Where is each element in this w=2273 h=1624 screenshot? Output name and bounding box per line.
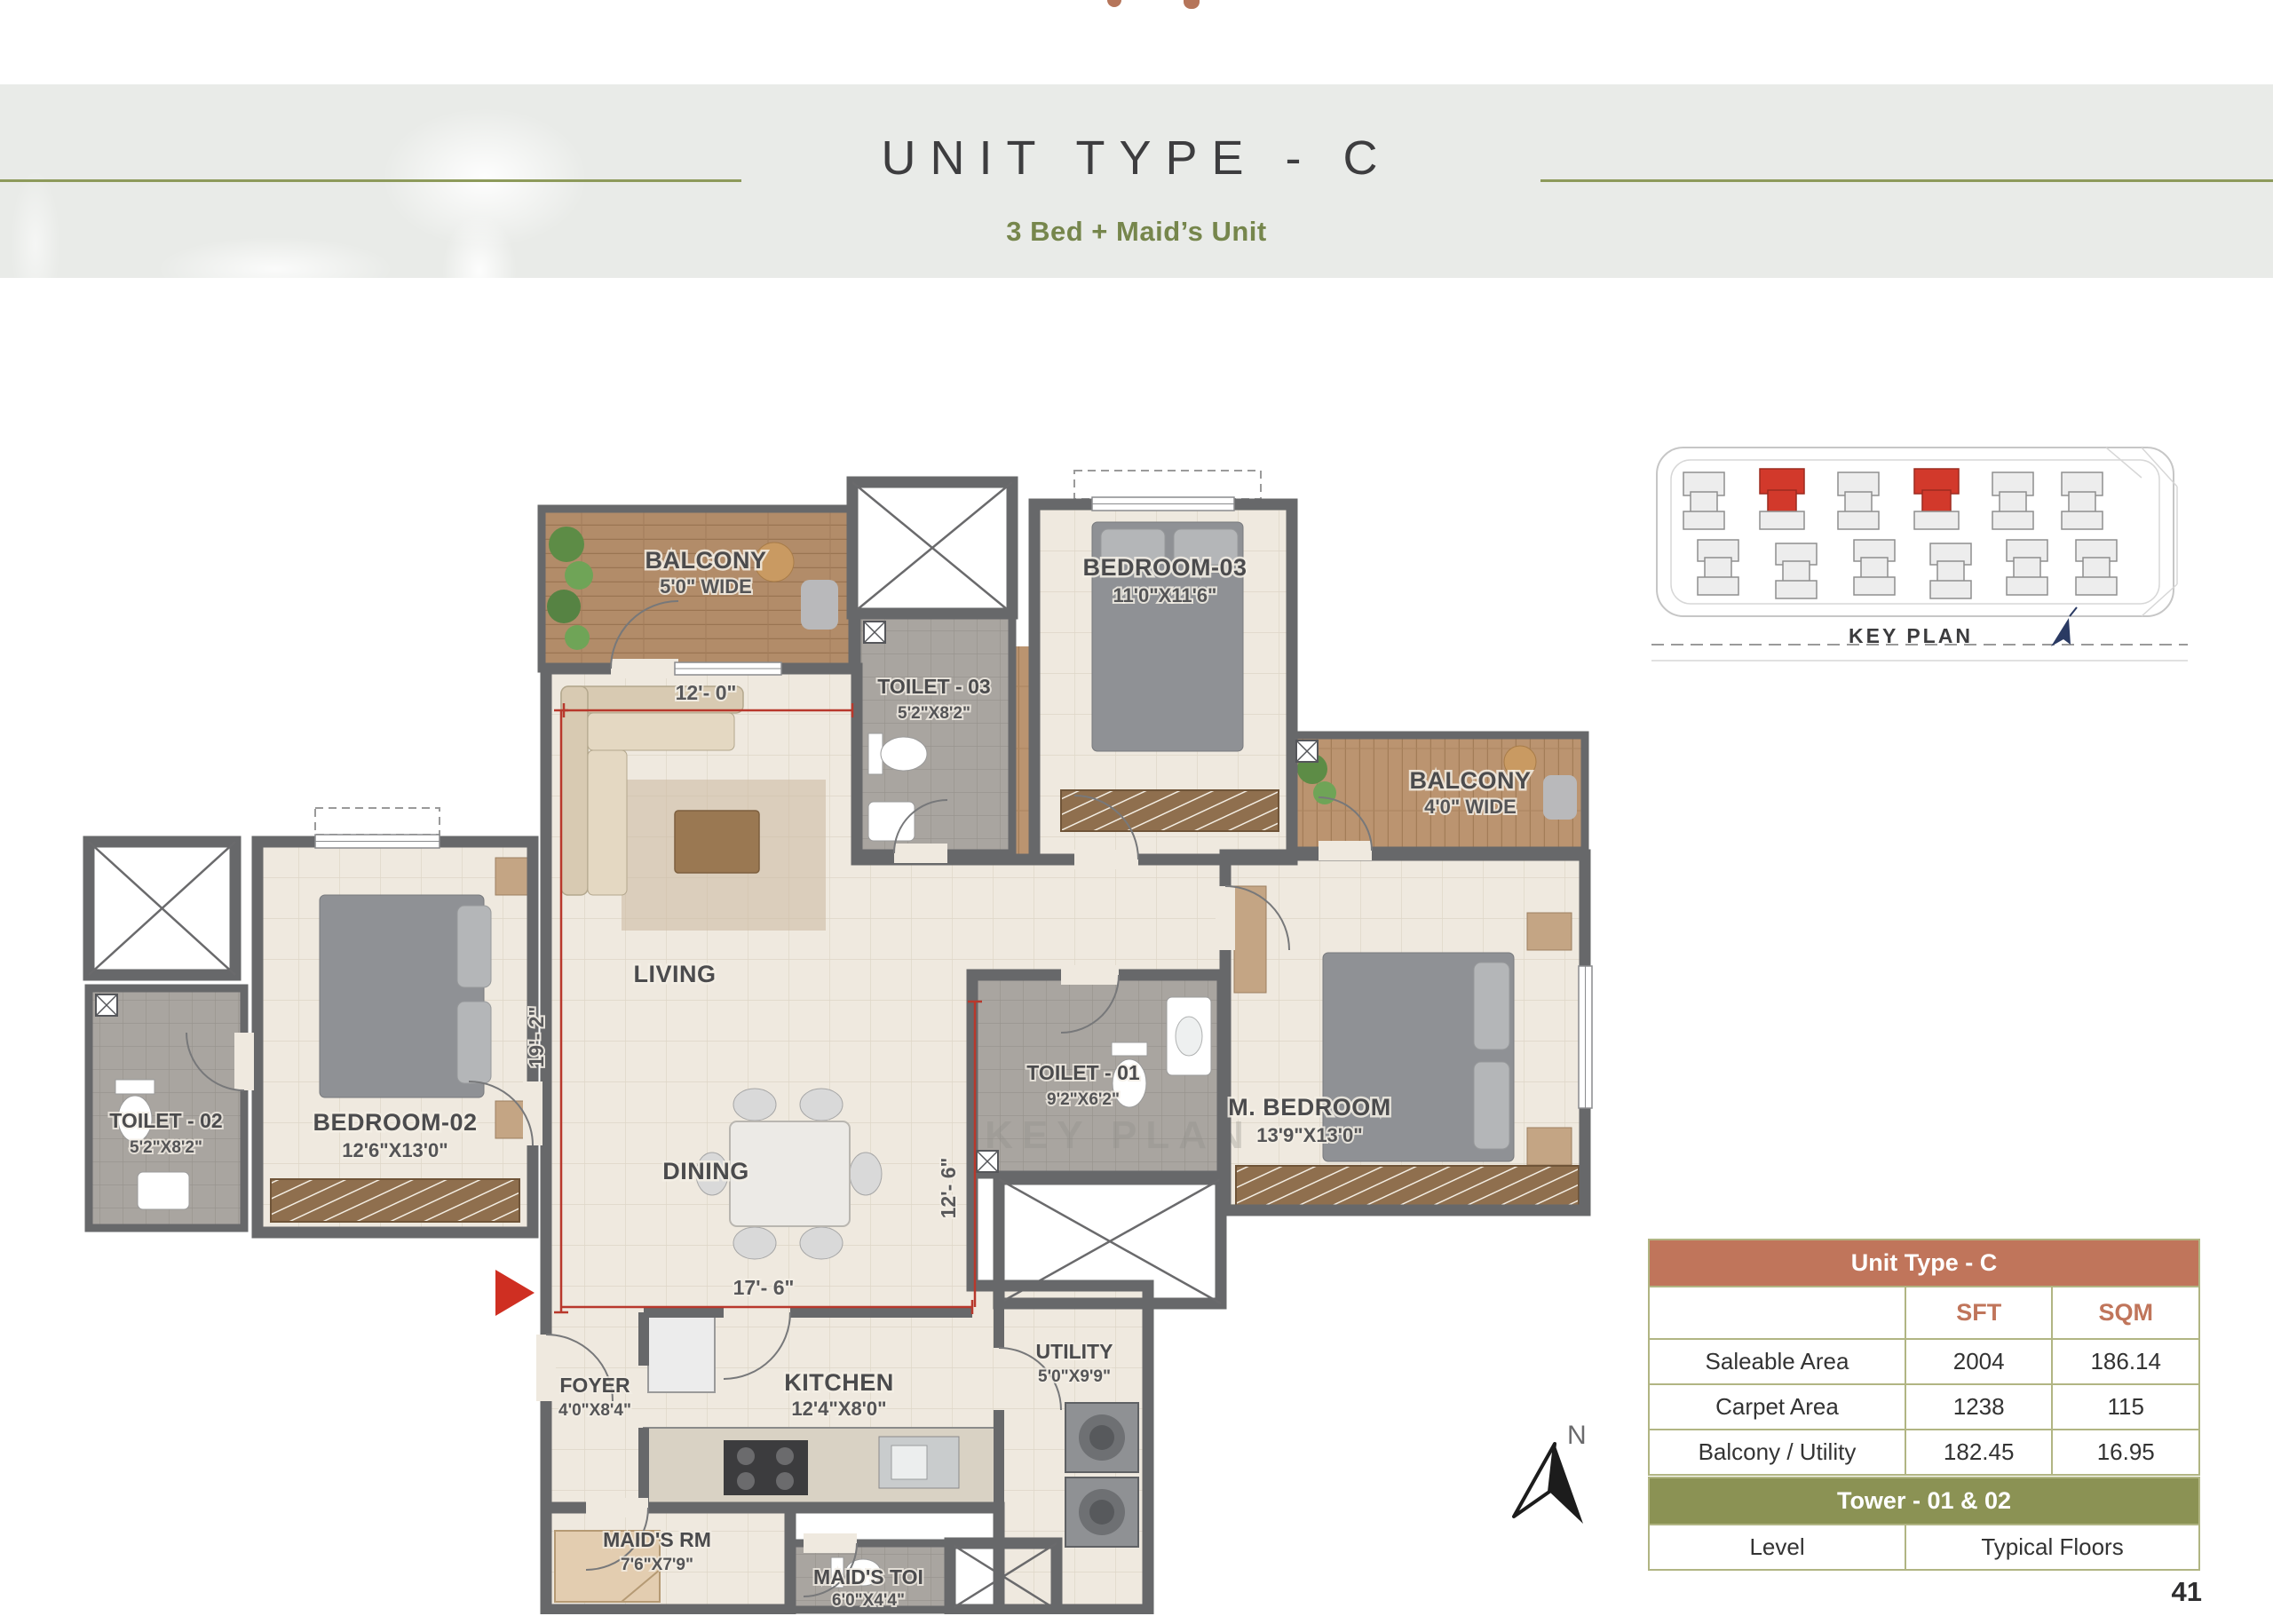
room-label-bedroom-2: BEDROOM-02 [313, 1109, 477, 1136]
tower-col-level: Level [1649, 1525, 1905, 1570]
room-dim-utility: 5'0"X9'9" [1038, 1367, 1111, 1386]
area-table-header-sqm: SQM [2052, 1287, 2199, 1339]
entry-arrow [495, 1270, 535, 1316]
tower-col-floors: Typical Floors [1905, 1525, 2199, 1570]
room-dim-kitchen: 12'4"X8'0" [791, 1398, 886, 1420]
room-dim-master-bedroom: 13'9"X13'0" [1256, 1124, 1362, 1146]
dim-dining-height: 12'- 6" [937, 1158, 960, 1219]
north-label: N [1567, 1421, 1587, 1450]
room-dim-bedroom-3: 11'0"X11'6" [1113, 584, 1217, 606]
area-table-blank-header [1649, 1287, 1905, 1339]
room-dim-maids-room: 7'6"X7'9" [621, 1556, 693, 1574]
dim-living-height: 19'- 2" [525, 1007, 548, 1068]
room-dim-toilet-2: 5'2"X8'2" [130, 1138, 202, 1157]
room-label-utility: UTILITY [1036, 1340, 1113, 1363]
room-label-balcony-1: BALCONY [645, 547, 767, 574]
room-dim-toilet-3: 5'2"X8'2" [898, 704, 970, 723]
room-label-maids-toilet: MAID'S TOI [813, 1565, 923, 1588]
table-row: Carpet Area 1238 115 [1649, 1384, 2199, 1430]
room-label-living: LIVING [633, 961, 716, 987]
row-label: Balcony / Utility [1649, 1430, 1905, 1475]
room-label-dining: DINING [662, 1158, 749, 1184]
page-subtitle: 3 Bed + Maid’s Unit [0, 216, 2273, 248]
room-dim-balcony-2: 4'0" WIDE [1424, 796, 1517, 818]
partial-logo [1184, 0, 1200, 9]
row-sqm: 16.95 [2052, 1430, 2199, 1475]
page-title: UNIT TYPE - C [0, 131, 2273, 186]
room-label-bedroom-3: BEDROOM-03 [1082, 554, 1247, 581]
dim-dining-width: 17'- 6" [733, 1276, 795, 1299]
tower-table: Tower - 01 & 02 Level Typical Floors [1648, 1477, 2200, 1571]
keyplan-north-icon [2051, 618, 2071, 646]
table-row: Saleable Area 2004 186.14 [1649, 1339, 2199, 1384]
floor-plan: KEY PLAN [53, 469, 1616, 1614]
watermark: KEY PLAN [985, 1113, 1253, 1157]
area-table-header-sft: SFT [1905, 1287, 2053, 1339]
row-sqm: 186.14 [2052, 1339, 2199, 1384]
room-label-foyer: FOYER [559, 1374, 630, 1397]
room-label-toilet-2: TOILET - 02 [109, 1109, 222, 1132]
row-label: Saleable Area [1649, 1339, 1905, 1384]
area-table-title: Unit Type - C [1649, 1240, 2199, 1287]
partial-logo [1107, 0, 1121, 7]
row-label: Carpet Area [1649, 1384, 1905, 1430]
keyplan-towers-bottom [1698, 540, 2117, 598]
right-rule [1540, 179, 2273, 182]
row-sft: 1238 [1905, 1384, 2053, 1430]
row-sft: 182.45 [1905, 1430, 2053, 1475]
key-plan: KEY PLAN [1644, 433, 2195, 675]
room-dim-balcony-1: 5'0" WIDE [660, 575, 752, 598]
room-label-balcony-2: BALCONY [1410, 767, 1532, 794]
north-arrow-icon-fill [1549, 1444, 1583, 1524]
room-label-toilet-3: TOILET - 03 [877, 675, 990, 698]
row-sqm: 115 [2052, 1384, 2199, 1430]
room-label-toilet-1: TOILET - 01 [1026, 1061, 1140, 1084]
keyplan-towers-top [1683, 469, 2103, 529]
tower-table-title: Tower - 01 & 02 [1649, 1477, 2199, 1525]
header-band: UNIT TYPE - C 3 Bed + Maid’s Unit [0, 84, 2273, 278]
room-label-maids-room: MAID'S RM [603, 1528, 711, 1551]
room-dim-foyer: 4'0"X8'4" [558, 1401, 631, 1420]
room-label-kitchen: KITCHEN [784, 1369, 894, 1396]
room-dim-bedroom-2: 12'6"X13'0" [342, 1139, 447, 1161]
brochure-page: UNIT TYPE - C 3 Bed + Maid’s Unit [0, 0, 2273, 1624]
dim-living-width: 12'- 0" [676, 681, 737, 704]
room-dim-maids-toilet: 6'0"X4'4" [832, 1591, 905, 1610]
lift-shaft-top [852, 482, 1012, 614]
dashed-projection [315, 808, 440, 835]
room-dim-toilet-1: 9'2"X6'2" [1047, 1090, 1120, 1109]
table-row: Balcony / Utility 182.45 16.95 [1649, 1430, 2199, 1475]
north-arrow-icon [1514, 1444, 1555, 1517]
north-compass: N [1503, 1417, 1601, 1533]
key-plan-label: KEY PLAN [1849, 624, 1973, 647]
lift-shaft-left [89, 842, 235, 975]
room-label-master-bedroom: M. BEDROOM [1228, 1094, 1391, 1121]
left-rule [0, 179, 741, 182]
page-number: 41 [2113, 1576, 2202, 1608]
dashed-projection [1074, 471, 1261, 499]
row-sft: 2004 [1905, 1339, 2053, 1384]
table-row: Level Typical Floors [1649, 1525, 2199, 1570]
area-table: Unit Type - C SFT SQM Saleable Area 2004… [1648, 1239, 2200, 1476]
